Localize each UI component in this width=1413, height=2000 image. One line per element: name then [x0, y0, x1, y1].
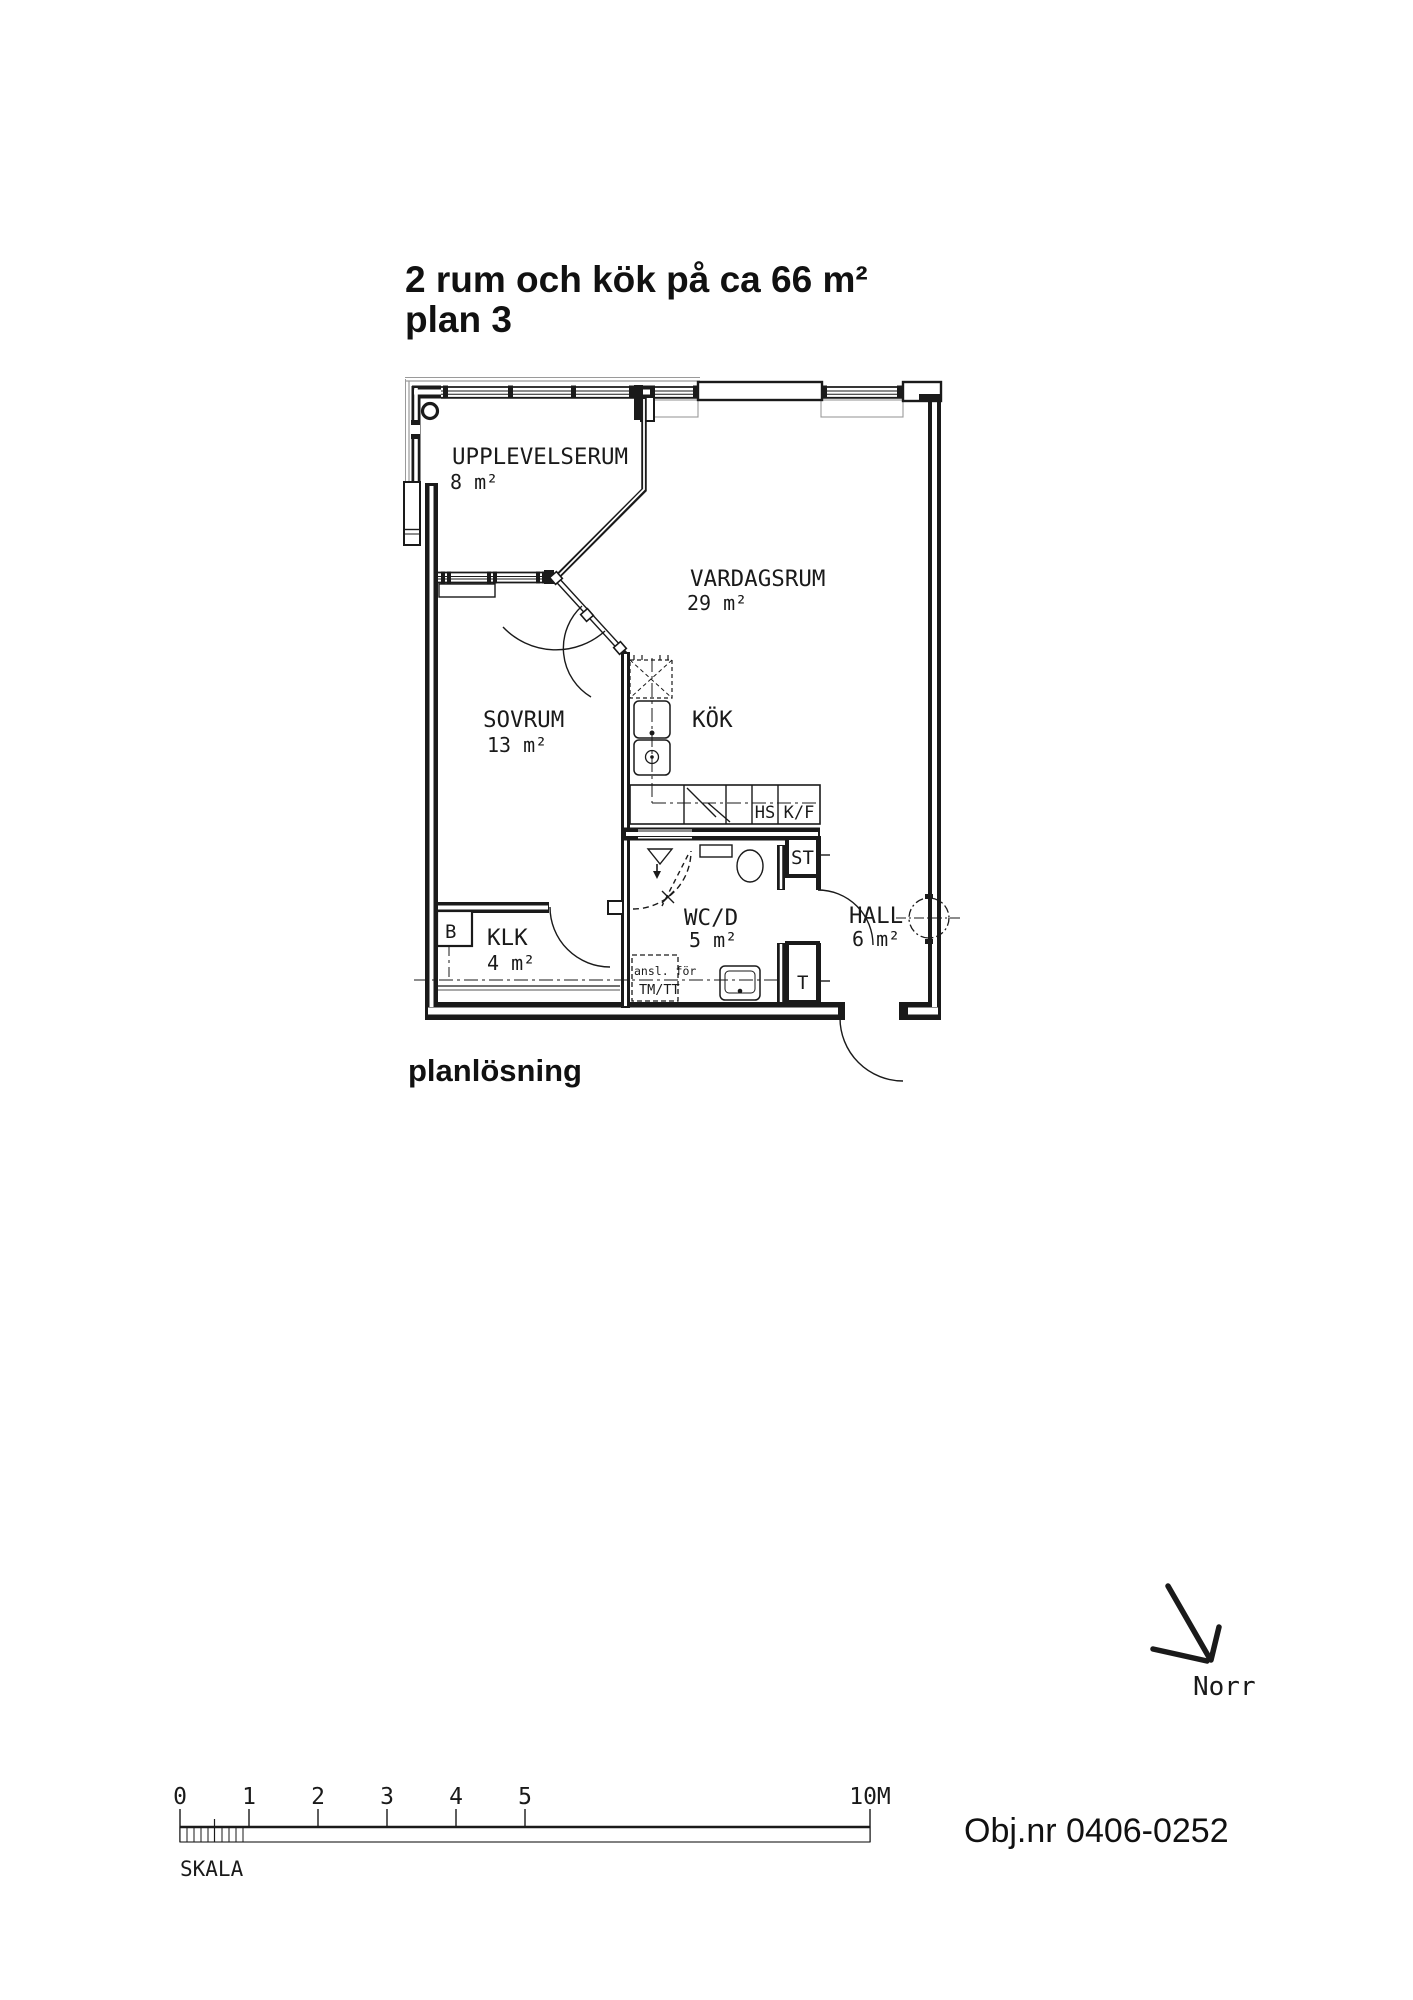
washer-connection-line1: ansl. för	[634, 964, 696, 978]
scale-bar: 0 1 2 3 4 5 10M SKALA	[173, 1784, 891, 1881]
room-kok-name: KÖK	[692, 705, 733, 733]
label-kf: K/F	[784, 803, 815, 823]
plan-caption: planlösning	[408, 1053, 582, 1089]
north-arrow-barb-left	[1153, 1649, 1207, 1661]
window-sill-left	[650, 400, 698, 417]
room-wcd-area: 5 m²	[689, 928, 737, 952]
room-vardagsrum-area: 29 m²	[687, 591, 747, 615]
washer-connection-line2: TM/TT	[639, 982, 680, 998]
washbasin	[720, 966, 760, 1000]
scale-label: SKALA	[180, 1857, 244, 1881]
klk-door-jamb	[608, 901, 623, 914]
label-hs: HS	[755, 803, 775, 823]
window-band-vardagsrum-left	[650, 386, 698, 399]
room-klk-name: KLK	[487, 925, 528, 951]
room-hall-area: 6 m²	[852, 927, 900, 951]
glass-partition	[438, 570, 554, 597]
overhead-cabinet	[630, 655, 672, 698]
window-band-vardagsrum-right	[821, 386, 903, 399]
kitchen-fixtures: HS K/F	[630, 655, 820, 824]
scale-tick-1: 1	[242, 1784, 256, 1810]
room-sovrum-name: SOVRUM	[483, 707, 564, 733]
north-arrow-barb-right	[1211, 1627, 1219, 1660]
scale-tick-5: 5	[518, 1784, 532, 1810]
door-cross-marker	[662, 891, 674, 903]
washer-connection-box: ansl. för TM/TT	[632, 955, 696, 1001]
kitchen-centerline	[652, 658, 817, 803]
object-number: Obj.nr 0406-0252	[964, 1812, 1229, 1851]
north-arrow	[1153, 1586, 1219, 1661]
scale-tick-3: 3	[380, 1784, 394, 1810]
scale-end-label: 10M	[849, 1784, 891, 1810]
shower-symbol	[648, 849, 672, 879]
room-upplevelserum-area: 8 m²	[450, 470, 498, 494]
floorplan-page: 2 rum och kök på ca 66 m² plan 3	[0, 0, 1413, 2000]
north-arrow-shaft	[1168, 1586, 1210, 1659]
label-st: ST	[791, 847, 814, 869]
entrance-door-swing	[840, 1018, 903, 1081]
floorplan-drawing: HS K/F ansl. för TM/TT	[0, 0, 1413, 2000]
wall-panel	[698, 382, 822, 400]
left-wall-small-window	[411, 420, 420, 439]
room-sovrum-area: 13 m²	[487, 733, 547, 757]
scale-tick-4: 4	[449, 1784, 463, 1810]
room-hall-name: HALL	[849, 903, 903, 929]
radiator	[439, 584, 495, 597]
room-klk-area: 4 m²	[487, 951, 535, 975]
label-b: B	[445, 921, 456, 943]
north-label: Norr	[1193, 1672, 1256, 1702]
toilet	[700, 845, 763, 882]
scale-tick-0: 0	[173, 1784, 187, 1810]
exterior-shaft	[404, 482, 420, 545]
label-t: T	[797, 972, 808, 994]
room-vardagsrum-name: VARDAGSRUM	[690, 566, 825, 592]
room-upplevelserum-name: UPPLEVELSERUM	[452, 444, 628, 470]
window-sill-right	[821, 400, 903, 417]
klk-door-swing	[550, 907, 610, 967]
diagonal-double-door	[503, 572, 626, 697]
column-symbol	[423, 404, 438, 419]
window-band-upplevelserum	[441, 386, 637, 399]
scale-tick-2: 2	[311, 1784, 325, 1810]
